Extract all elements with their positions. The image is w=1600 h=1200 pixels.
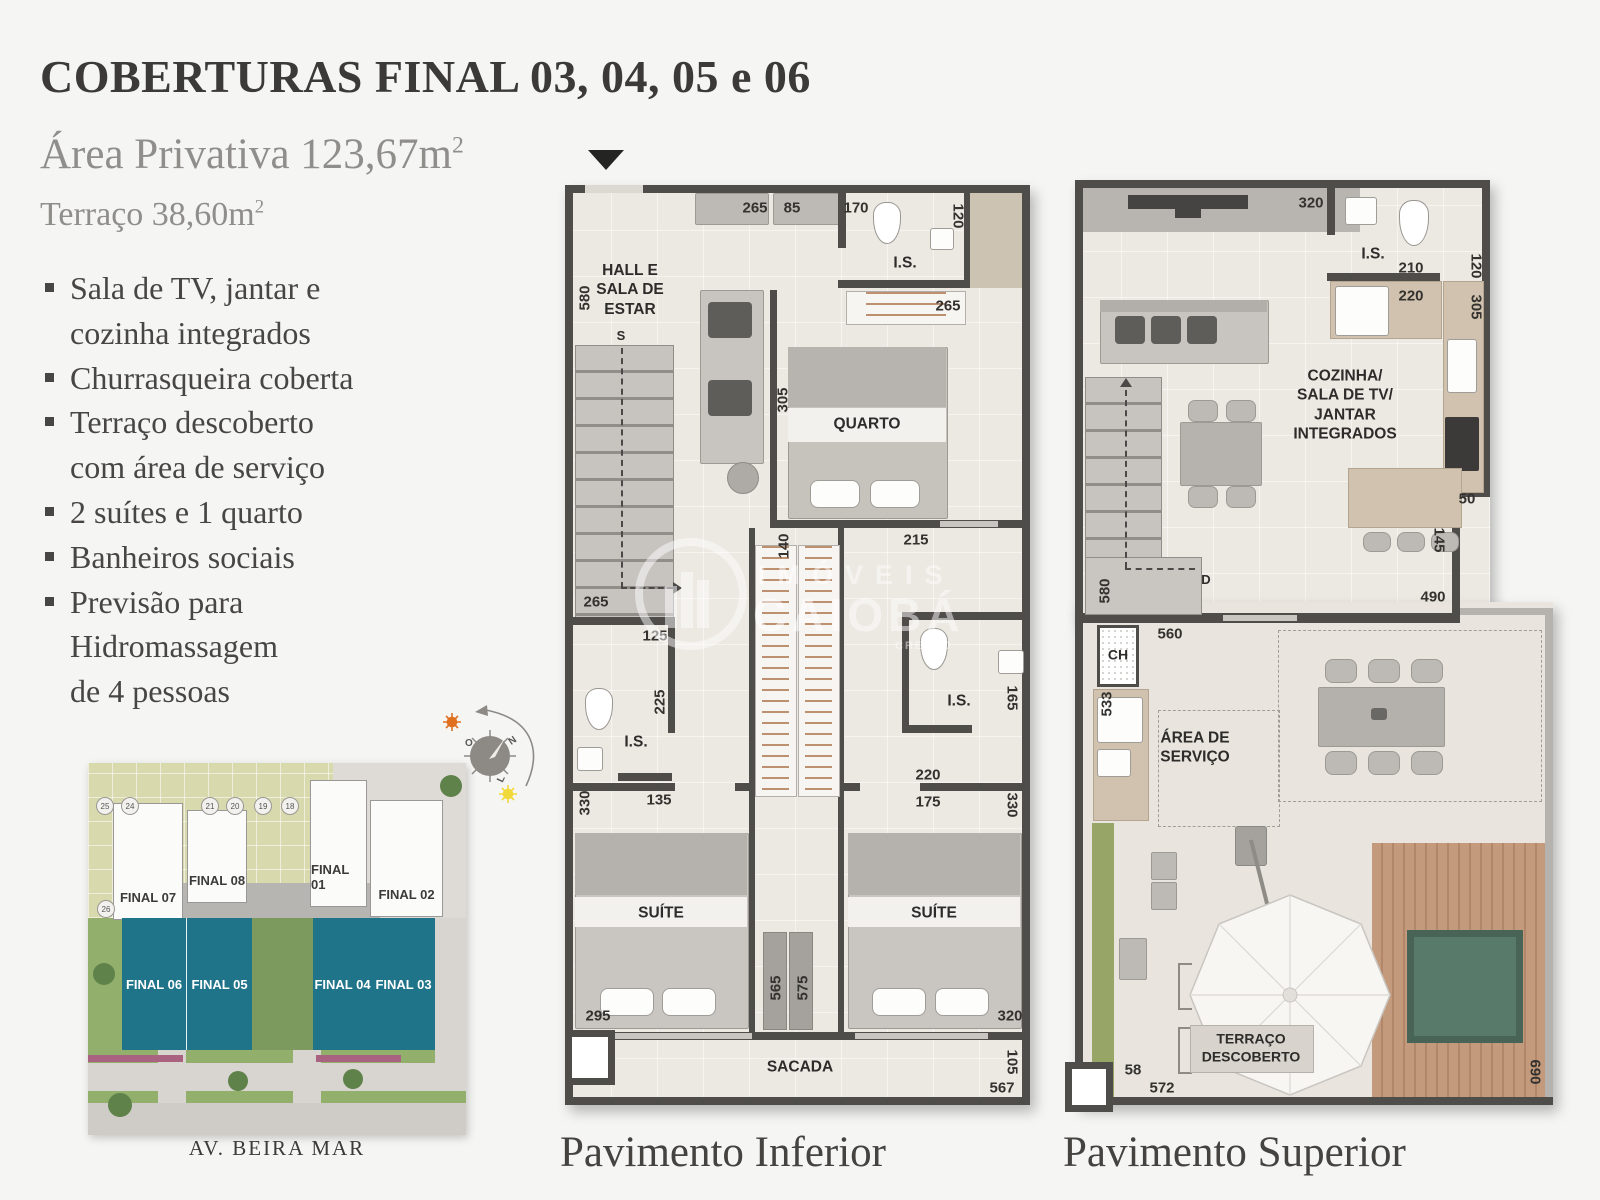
door-gap	[940, 521, 998, 527]
spot-number: 21	[206, 802, 215, 811]
spot-number: 20	[231, 802, 240, 811]
tree-icon	[228, 1071, 248, 1091]
unit-label: FINAL 03	[375, 977, 431, 992]
island-counter	[1348, 468, 1462, 528]
wall	[1075, 180, 1083, 1105]
feature-item: Banheiros sociais	[40, 535, 353, 580]
tv-icon	[1128, 195, 1248, 209]
room-label-suite: SUÍTE	[911, 903, 957, 922]
room-label-churrasqueira: CH	[1108, 646, 1128, 664]
sofa-pillow	[1187, 316, 1217, 344]
room-label-sacada: SACADA	[767, 1057, 833, 1076]
shower-area	[970, 193, 1022, 288]
site-unit-final08: FINAL 08	[187, 810, 247, 903]
wall	[838, 280, 968, 288]
dim-label: 560	[1157, 626, 1182, 643]
chair	[1188, 486, 1218, 508]
street-label: AV. BEIRA MAR	[88, 1136, 466, 1161]
tree-icon	[440, 775, 462, 797]
sofa-back	[1100, 300, 1267, 312]
dim-label: 120	[950, 203, 967, 228]
site-unit-final06: FINAL 06	[122, 918, 187, 1050]
pillow	[935, 988, 989, 1016]
sofa-pillow	[1151, 316, 1181, 344]
dim-label: 490	[1420, 589, 1445, 606]
private-area-text: Área Privativa 123,67m2	[40, 130, 464, 179]
room-label-servico: ÁREA DE SERVIÇO	[1140, 729, 1250, 768]
feature-item: Terraço descoberto com área de serviço	[40, 400, 353, 490]
parapet-wall	[1460, 608, 1553, 615]
stairs	[1085, 377, 1162, 559]
sliding-door	[613, 1033, 752, 1039]
floor-plan-inferior: HALL E SALA DE ESTAR S I.S. QUARTO I.S. …	[560, 150, 1040, 1160]
tree-icon	[93, 963, 115, 985]
square-sup: 2	[255, 197, 264, 218]
dim-label: 320	[1298, 195, 1323, 212]
dim-label: 215	[903, 532, 928, 549]
unit-label: FINAL 04	[314, 977, 370, 992]
dim-label: 572	[1149, 1080, 1174, 1097]
spa-hot-tub	[1407, 930, 1523, 1043]
room-label-is: I.S.	[624, 732, 647, 751]
wall	[565, 617, 675, 625]
room-label-living: COZINHA/ SALA DE TV/ JANTAR INTEGRADOS	[1260, 366, 1430, 444]
dim-label: 320	[997, 1008, 1022, 1025]
room-label-is: I.S.	[947, 691, 970, 710]
dim-label: 50	[1459, 491, 1476, 508]
sink-icon	[1345, 197, 1377, 225]
stair-direction-arrow	[1120, 378, 1132, 387]
pillow	[810, 480, 860, 508]
dim-label: 305	[1468, 294, 1485, 319]
unit-label: FINAL 01	[311, 862, 366, 892]
dim-label: 145	[1431, 527, 1448, 552]
dim-label: 575	[795, 975, 812, 1000]
unit-label: FINAL 07	[120, 890, 176, 905]
compass-east-label: L	[495, 774, 508, 784]
wall	[1075, 180, 1490, 188]
wall	[565, 1097, 1030, 1105]
chair	[1226, 400, 1256, 422]
sliding-door	[855, 1033, 988, 1039]
walkway	[88, 1063, 466, 1091]
stove-icon	[1445, 417, 1479, 471]
unit-label: FINAL 02	[378, 887, 434, 902]
wall	[844, 783, 860, 791]
wall	[618, 773, 672, 781]
sofa-pillow	[708, 380, 752, 416]
lounger	[1119, 938, 1147, 980]
terrace-area-value: Terraço 38,60m	[40, 196, 255, 233]
dim-label: 220	[915, 767, 940, 784]
walk-in-closet	[755, 545, 797, 797]
shaft	[565, 1030, 615, 1085]
site-plan: FINAL 07 FINAL 08 FINAL 01 FINAL 02 FINA…	[88, 763, 466, 1135]
site-unit-final01: FINAL 01	[310, 780, 367, 907]
room-label-terraco: TERRAÇO DESCOBERTO	[1191, 1031, 1311, 1066]
chair	[1226, 486, 1256, 508]
dim-label: 567	[989, 1080, 1014, 1097]
room-label-quarto: QUARTO	[834, 414, 901, 433]
parking-spot: 26	[97, 900, 115, 918]
stair-direction-arrow	[673, 582, 682, 594]
dim-label: 140	[776, 533, 793, 558]
chair	[1411, 659, 1443, 683]
site-unit-final05: FINAL 05	[187, 918, 252, 1050]
wall	[1327, 188, 1335, 235]
feature-list: Sala de TV, jantar e cozinha integrados …	[40, 266, 353, 714]
bench-bracket	[1178, 963, 1192, 1010]
planter-grass	[1092, 823, 1114, 1097]
floor-plan-superior: I.S. COZINHA/ SALA DE TV/ JANTAR INTEGRA…	[1063, 150, 1563, 1160]
dim-label: 210	[1398, 260, 1423, 277]
terrace-area-text: Terraço 38,60m2	[40, 196, 264, 234]
dim-label: 330	[577, 790, 594, 815]
parking-spot: 18	[281, 797, 299, 815]
dim-label: 565	[768, 975, 785, 1000]
caption-superior: Pavimento Superior	[1063, 1128, 1406, 1177]
parking-spot: 25	[96, 797, 114, 815]
room-label-suite: SUÍTE	[638, 903, 684, 922]
compass-west-label: O	[465, 738, 473, 749]
sun-west-icon	[443, 713, 461, 731]
wall	[1022, 185, 1030, 1105]
stool	[1363, 532, 1391, 552]
kitchen-sink-icon	[1447, 339, 1477, 393]
site-unit-final04: FINAL 04	[313, 918, 373, 1050]
chair	[1325, 751, 1357, 775]
dim-label: 305	[775, 387, 792, 412]
stool	[1397, 532, 1425, 552]
unit-label: FINAL 06	[126, 977, 182, 992]
tree-icon	[108, 1093, 132, 1117]
bed-blanket	[848, 833, 1020, 895]
stair-label: D	[1201, 572, 1210, 588]
feature-item: 2 suítes e 1 quarto	[40, 490, 353, 535]
dim-label: 120	[1468, 253, 1485, 278]
dim-label: 265	[583, 594, 608, 611]
terrace-chair	[1151, 882, 1177, 910]
sink-icon	[577, 747, 603, 771]
dim-label: 225	[652, 689, 669, 714]
parapet-wall	[1545, 608, 1553, 1105]
dim-label: 220	[1398, 288, 1423, 305]
pillow	[872, 988, 926, 1016]
door-gap	[1223, 615, 1297, 621]
wall	[902, 612, 909, 733]
dim-label: 105	[1004, 1049, 1021, 1074]
dim-label: 125	[642, 628, 667, 645]
dim-label: 175	[915, 794, 940, 811]
table-centerpiece	[1371, 708, 1387, 720]
bed-blanket	[788, 347, 946, 407]
compass-north-label: N	[507, 734, 519, 747]
chair	[1188, 400, 1218, 422]
dim-label: 265	[742, 200, 767, 217]
feature-item: Sala de TV, jantar e cozinha integrados	[40, 266, 353, 356]
shaft	[1065, 1062, 1113, 1112]
dim-label: 135	[646, 792, 671, 809]
wall	[902, 725, 972, 733]
sun-east-icon	[499, 785, 517, 803]
entrance-marker-icon	[588, 150, 624, 170]
service-sink-icon	[1097, 749, 1131, 777]
spot-number: 24	[126, 802, 135, 811]
room-label-is: I.S.	[893, 253, 916, 272]
stair-walkline	[1125, 390, 1129, 568]
unit-label: FINAL 08	[189, 873, 245, 888]
dim-label: 580	[1097, 578, 1114, 603]
fridge	[1335, 286, 1389, 336]
dim-label: 330	[1004, 792, 1021, 817]
sofa-pillow	[708, 302, 752, 338]
parking-spot: 21	[201, 797, 219, 815]
terrace-chair	[1151, 852, 1177, 880]
stair-walkline	[621, 348, 625, 588]
chair	[1368, 751, 1400, 775]
dining-table	[1180, 422, 1262, 486]
sofa-pillow	[1115, 316, 1145, 344]
pillow	[662, 988, 716, 1016]
parking-spot: 24	[121, 797, 139, 815]
chair	[1325, 659, 1357, 683]
dim-label: 295	[585, 1008, 610, 1025]
dim-label: 58	[1125, 1062, 1142, 1079]
sink-icon	[930, 228, 954, 250]
caption-inferior: Pavimento Inferior	[560, 1128, 886, 1177]
dim-label: 170	[843, 200, 868, 217]
pillow	[870, 480, 920, 508]
dim-label: 580	[577, 285, 594, 310]
walk-in-closet	[798, 545, 840, 797]
dim-label: 533	[1099, 691, 1116, 716]
stair-walkline	[1125, 568, 1195, 572]
chair	[1411, 751, 1443, 775]
tree-icon	[343, 1069, 363, 1089]
dim-label: 85	[784, 200, 801, 217]
room-label-is: I.S.	[1361, 244, 1384, 263]
dim-label: 265	[935, 298, 960, 315]
spot-number: 19	[259, 802, 268, 811]
feature-item: Churrasqueira coberta	[40, 356, 353, 401]
spot-number: 25	[101, 802, 110, 811]
square-sup: 2	[452, 133, 464, 159]
shrub-row	[316, 1055, 401, 1062]
chair	[1368, 659, 1400, 683]
inner-court	[252, 918, 313, 1050]
parking-spot: 20	[226, 797, 244, 815]
wall	[668, 617, 675, 733]
site-unit-final07: FINAL 07	[113, 803, 183, 920]
tv-mount	[1175, 209, 1201, 218]
unit-label: FINAL 05	[191, 977, 247, 992]
stair-label: S	[617, 328, 626, 344]
private-area-value: Área Privativa 123,67m	[40, 131, 452, 178]
wall	[565, 185, 573, 1105]
entrance-door-gap	[585, 185, 643, 193]
bed-blanket	[575, 833, 747, 895]
sink-icon	[998, 650, 1024, 674]
walkway	[435, 918, 466, 1063]
stair-walkline	[621, 587, 673, 591]
dim-label: 165	[1004, 685, 1021, 710]
side-table	[727, 462, 759, 494]
spot-number: 18	[286, 802, 295, 811]
sidewalk	[88, 1103, 466, 1135]
wall	[735, 783, 749, 791]
site-unit-final03: FINAL 03	[372, 918, 435, 1050]
wall	[902, 612, 1030, 620]
feature-item: Previsão para Hidromassagem de 4 pessoas	[40, 580, 353, 714]
page-title: COBERTURAS FINAL 03, 04, 05 e 06	[40, 50, 811, 103]
site-unit-final02: FINAL 02	[370, 800, 443, 917]
dim-label: 690	[1527, 1059, 1544, 1084]
parking-spot: 19	[254, 797, 272, 815]
spot-number: 26	[102, 905, 111, 914]
wall	[920, 783, 1030, 791]
shrub-row	[88, 1055, 183, 1062]
